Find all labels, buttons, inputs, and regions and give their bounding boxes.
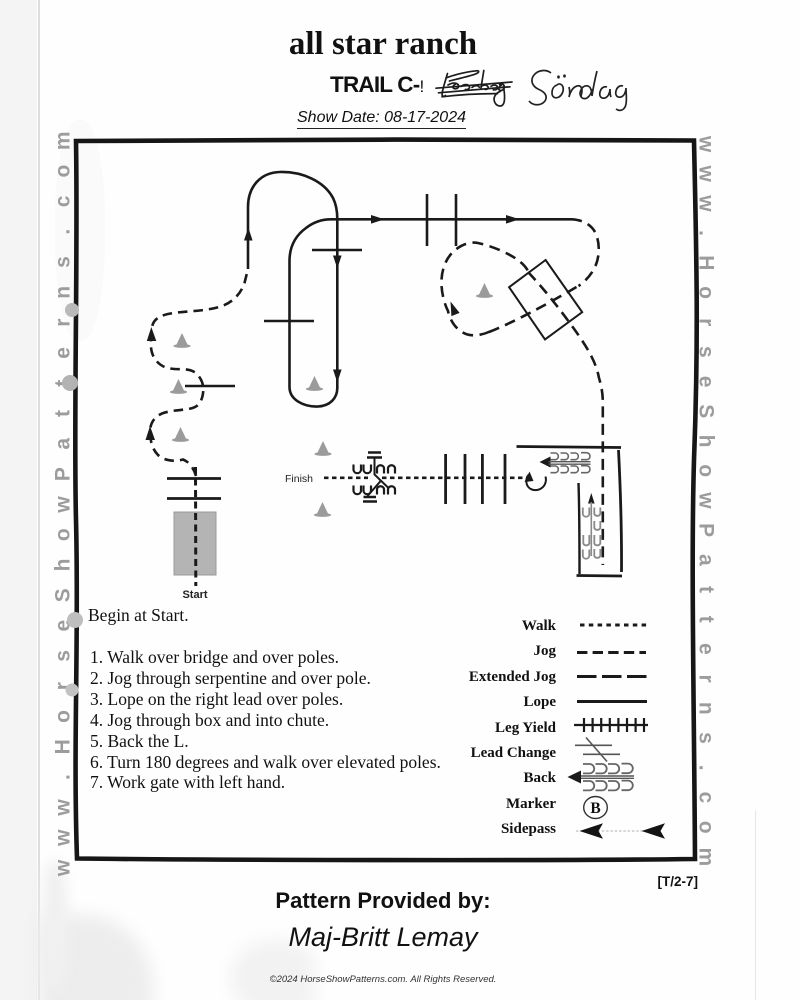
svg-text:S: S bbox=[695, 404, 718, 418]
svg-text:P: P bbox=[695, 523, 718, 537]
svg-text:H: H bbox=[695, 255, 718, 270]
svg-text:s: s bbox=[52, 256, 75, 268]
svg-text:s: s bbox=[695, 732, 718, 744]
svg-text:o: o bbox=[695, 464, 718, 477]
svg-text:r: r bbox=[695, 318, 718, 326]
svg-text:.: . bbox=[695, 230, 718, 236]
svg-text:H: H bbox=[52, 739, 75, 754]
svg-text:c: c bbox=[52, 195, 75, 207]
svg-text:n: n bbox=[52, 286, 75, 299]
svg-text:r: r bbox=[52, 319, 75, 327]
svg-text:w: w bbox=[695, 491, 718, 509]
svg-text:e: e bbox=[695, 376, 718, 388]
svg-text:e: e bbox=[52, 347, 75, 359]
svg-text:a: a bbox=[52, 438, 75, 450]
svg-text:r: r bbox=[695, 675, 718, 683]
svg-text:w: w bbox=[52, 829, 75, 847]
svg-text:Start: Start bbox=[182, 589, 207, 601]
svg-text:w: w bbox=[695, 194, 718, 212]
svg-text:m: m bbox=[695, 847, 718, 866]
svg-text:S: S bbox=[52, 588, 75, 602]
svg-text:Finish: Finish bbox=[285, 473, 313, 485]
svg-text:B: B bbox=[590, 800, 600, 817]
svg-text:s: s bbox=[695, 346, 718, 358]
svg-text:w: w bbox=[52, 799, 75, 817]
svg-text:o: o bbox=[695, 821, 718, 834]
svg-text:w: w bbox=[52, 859, 75, 877]
svg-text:a: a bbox=[695, 554, 718, 566]
svg-text:.: . bbox=[695, 765, 718, 771]
svg-text:o: o bbox=[52, 710, 75, 723]
svg-text:w: w bbox=[52, 496, 75, 514]
svg-text:o: o bbox=[695, 286, 718, 299]
svg-text:t: t bbox=[695, 616, 718, 623]
svg-text:P: P bbox=[52, 467, 75, 481]
svg-text:t: t bbox=[695, 586, 718, 593]
svg-text:w: w bbox=[695, 135, 718, 153]
svg-text:w: w bbox=[695, 165, 718, 183]
svg-text:c: c bbox=[695, 792, 718, 804]
svg-text:n: n bbox=[695, 702, 718, 715]
svg-text:.: . bbox=[52, 229, 75, 235]
svg-text:o: o bbox=[52, 528, 75, 541]
svg-text:.: . bbox=[52, 774, 75, 780]
svg-text:h: h bbox=[695, 435, 718, 448]
svg-text:o: o bbox=[52, 165, 75, 178]
svg-text:h: h bbox=[52, 559, 75, 572]
svg-text:s: s bbox=[52, 650, 75, 662]
svg-text:t: t bbox=[52, 410, 75, 417]
svg-text:m: m bbox=[52, 131, 75, 150]
svg-text:e: e bbox=[695, 643, 718, 655]
